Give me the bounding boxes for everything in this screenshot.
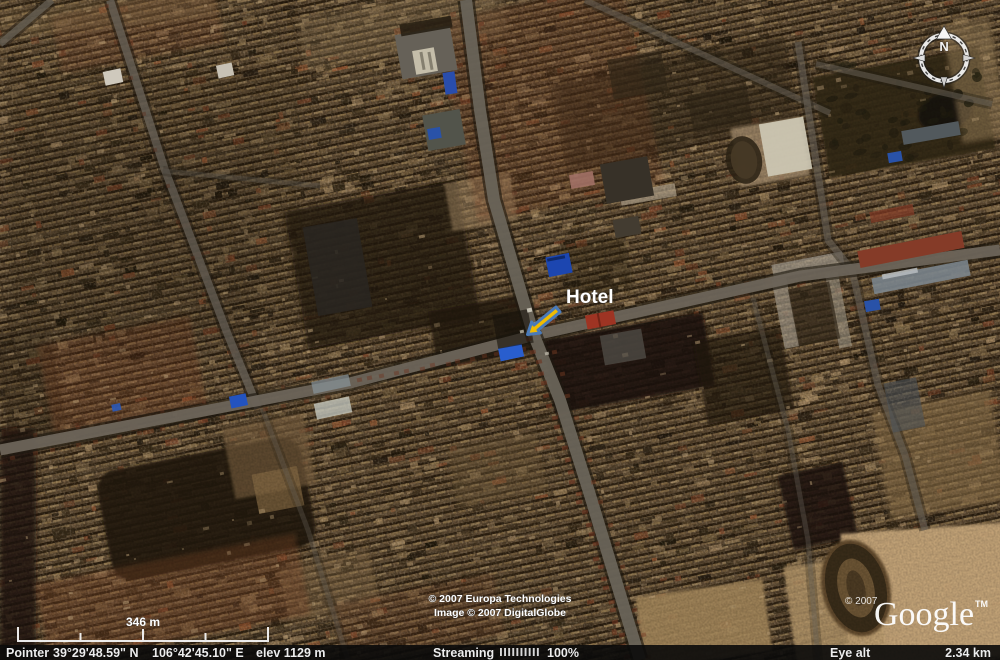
svg-text:TM: TM xyxy=(975,599,988,609)
svg-text:Eye alt: Eye alt xyxy=(830,646,871,660)
svg-text:100%: 100% xyxy=(547,646,579,660)
svg-text:Streaming: Streaming xyxy=(433,646,494,660)
svg-text:Image © 2007 DigitalGlobe: Image © 2007 DigitalGlobe xyxy=(434,607,566,619)
svg-text:© 2007 Europa Technologies: © 2007 Europa Technologies xyxy=(429,593,572,605)
svg-text:N: N xyxy=(939,39,948,54)
svg-text:elev 1129 m: elev 1129 m xyxy=(256,646,326,660)
svg-text:© 2007: © 2007 xyxy=(845,596,878,607)
svg-text:2.34 km: 2.34 km xyxy=(945,646,991,660)
svg-text:Hotel: Hotel xyxy=(566,287,614,308)
svg-text:39°29'48.59" N: 39°29'48.59" N xyxy=(53,646,139,660)
svg-text:Google: Google xyxy=(874,596,974,633)
svg-text:346 m: 346 m xyxy=(126,615,160,629)
svg-text:106°42'45.10" E: 106°42'45.10" E xyxy=(152,646,244,660)
svg-text:Pointer: Pointer xyxy=(6,646,49,660)
